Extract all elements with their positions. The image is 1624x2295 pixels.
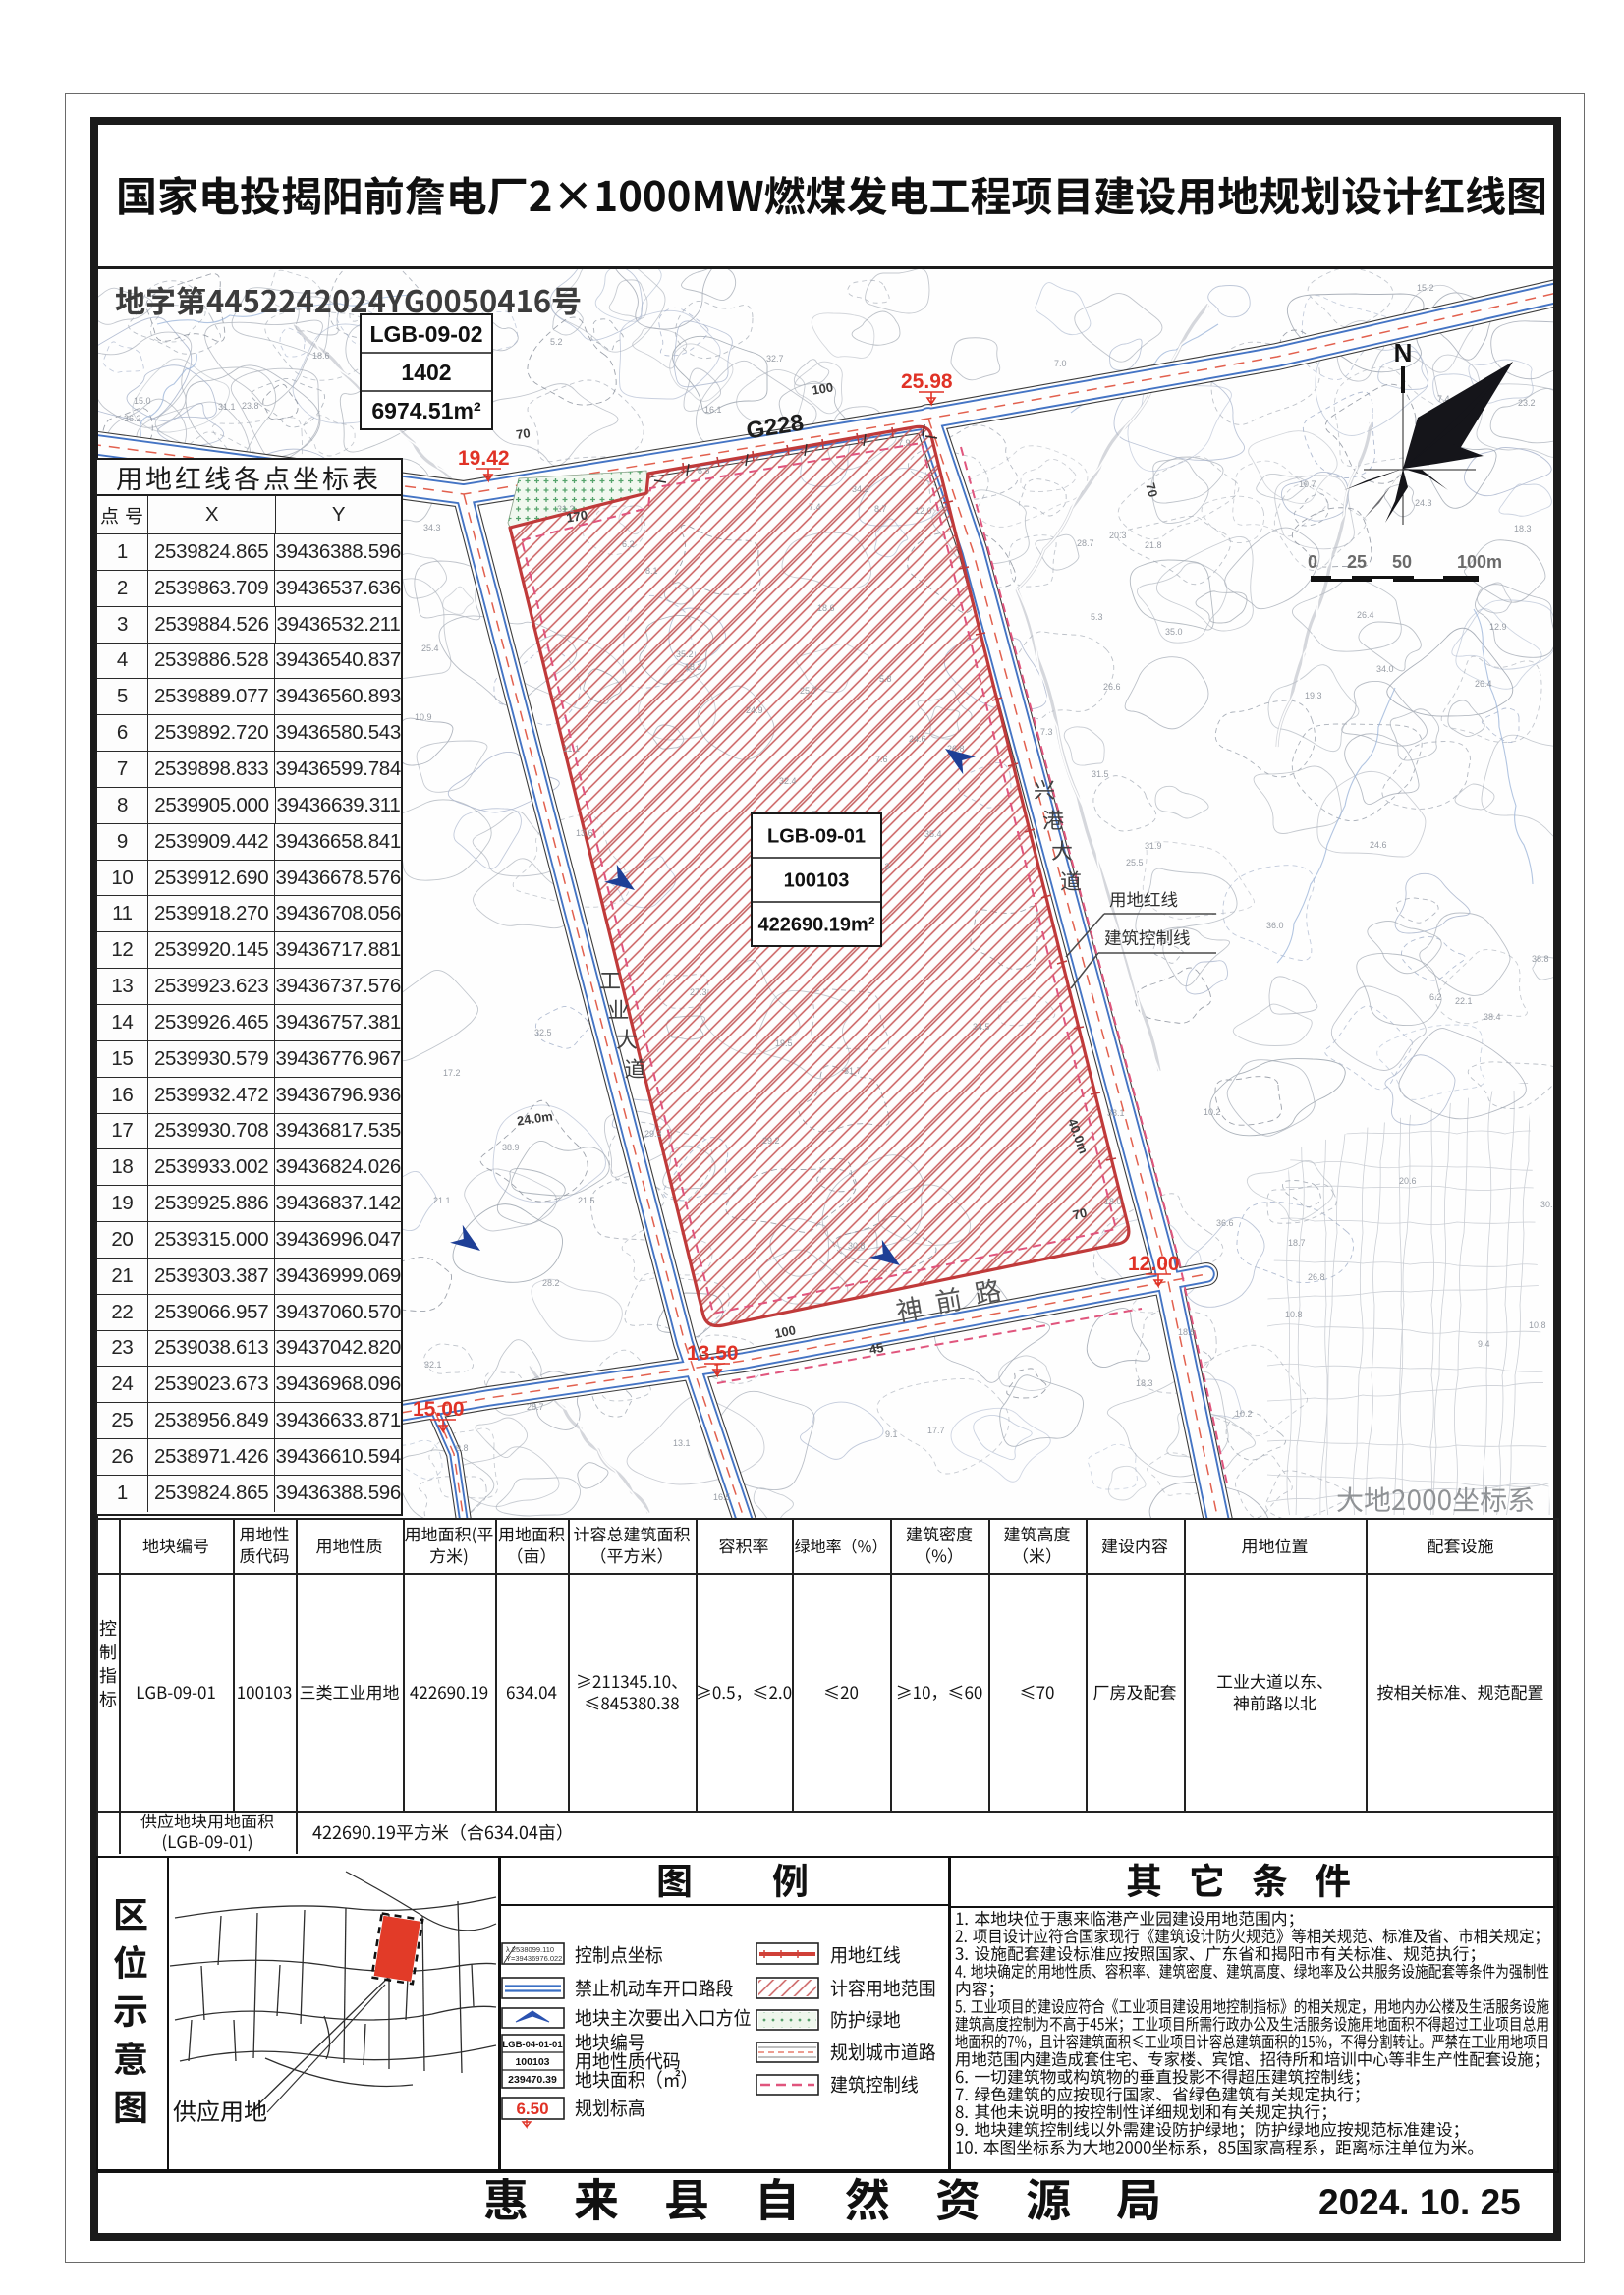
svg-text:34.0: 34.0 [1376, 664, 1394, 674]
svg-text:100103: 100103 [784, 870, 850, 892]
svg-text:31.7: 31.7 [844, 1066, 862, 1076]
svg-text:7.4: 7.4 [809, 502, 821, 512]
svg-text:11.1: 11.1 [563, 744, 580, 754]
svg-text:6974.51m²: 6974.51m² [371, 398, 481, 423]
svg-text:23.8: 23.8 [242, 401, 259, 411]
svg-text:26.8: 26.8 [1308, 1272, 1325, 1282]
svg-text:10.9: 10.9 [415, 712, 432, 722]
svg-text:LGB-09-01: LGB-09-01 [767, 826, 866, 848]
svg-text:31.9: 31.9 [1145, 841, 1162, 851]
svg-text:25: 25 [1347, 552, 1367, 572]
svg-text:34.5: 34.5 [973, 1022, 990, 1032]
svg-text:18.6: 18.6 [817, 603, 835, 613]
svg-text:19.5: 19.5 [775, 1038, 793, 1048]
svg-text:8.1: 8.1 [645, 566, 658, 576]
svg-text:19.42: 19.42 [458, 447, 510, 470]
svg-text:38.8: 38.8 [1532, 954, 1549, 964]
svg-text:36.6: 36.6 [1216, 1218, 1234, 1228]
svg-text:32.5: 32.5 [534, 1028, 552, 1037]
svg-text:N: N [1394, 338, 1413, 367]
svg-text:29.2: 29.2 [762, 1136, 780, 1146]
svg-text:15.2: 15.2 [1417, 283, 1434, 293]
svg-text:10.2: 10.2 [1204, 1107, 1221, 1117]
svg-text:9.8: 9.8 [456, 1443, 469, 1453]
svg-text:17.7: 17.7 [927, 1426, 945, 1435]
svg-text:6.2: 6.2 [1429, 992, 1442, 1002]
svg-text:30.2: 30.2 [1540, 1200, 1558, 1209]
svg-text:38.4: 38.4 [1484, 1012, 1501, 1022]
svg-text:29.3: 29.3 [644, 1129, 662, 1139]
svg-text:26.4: 26.4 [1357, 610, 1374, 620]
svg-text:13.50: 13.50 [687, 1342, 739, 1365]
svg-text:18.3: 18.3 [1136, 1378, 1153, 1388]
svg-text:25.4: 25.4 [421, 644, 439, 653]
svg-text:20.6: 20.6 [1399, 1176, 1417, 1186]
svg-text:24.6: 24.6 [1370, 840, 1387, 850]
svg-text:10.7: 10.7 [1299, 479, 1316, 489]
svg-text:26.4: 26.4 [1475, 679, 1492, 689]
svg-text:45: 45 [868, 1340, 885, 1357]
svg-text:9.1: 9.1 [885, 1429, 898, 1439]
svg-text:18.3: 18.3 [1514, 524, 1532, 533]
svg-text:13.1: 13.1 [673, 1438, 691, 1448]
svg-text:7.9: 7.9 [898, 438, 911, 448]
svg-text:8.8: 8.8 [698, 466, 710, 476]
svg-text:70: 70 [515, 425, 531, 442]
svg-text:31.5: 31.5 [1092, 769, 1109, 779]
svg-text:7.6: 7.6 [875, 755, 888, 764]
svg-text:34.3: 34.3 [423, 523, 441, 532]
svg-text:1402: 1402 [401, 360, 451, 385]
svg-text:19.3: 19.3 [1305, 691, 1322, 700]
svg-text:18.2: 18.2 [685, 662, 702, 672]
svg-text:24.3: 24.3 [1415, 498, 1432, 508]
svg-text:34.2: 34.2 [852, 484, 869, 494]
svg-text:21.1: 21.1 [433, 1196, 451, 1205]
svg-text:7.0: 7.0 [1054, 359, 1067, 368]
svg-text:35.4: 35.4 [924, 829, 942, 839]
svg-text:422690.19m²: 422690.19m² [758, 915, 875, 936]
svg-text:24.9: 24.9 [746, 705, 763, 715]
svg-text:30.8: 30.8 [848, 1241, 866, 1251]
svg-text:15.0: 15.0 [134, 396, 151, 406]
svg-text:18.5: 18.5 [1178, 1327, 1196, 1337]
svg-text:35.2: 35.2 [676, 649, 694, 659]
svg-text:12.0: 12.0 [915, 506, 932, 516]
svg-text:26.6: 26.6 [1103, 682, 1121, 692]
svg-text:0: 0 [1308, 552, 1317, 572]
svg-text:16.1: 16.1 [704, 405, 722, 415]
svg-text:21.8: 21.8 [1145, 540, 1162, 550]
svg-text:27.3: 27.3 [690, 987, 707, 997]
svg-text:15.00: 15.00 [413, 1398, 465, 1421]
svg-text:24.6: 24.6 [909, 734, 926, 744]
svg-text:50: 50 [1392, 552, 1412, 572]
svg-text:21.5: 21.5 [578, 1196, 595, 1205]
svg-text:28.7: 28.7 [527, 1402, 544, 1412]
svg-text:18.6: 18.6 [312, 351, 330, 361]
svg-text:23.2: 23.2 [1518, 398, 1536, 408]
svg-text:38.1: 38.1 [1107, 1108, 1125, 1118]
svg-text:38.9: 38.9 [502, 1143, 520, 1152]
svg-text:7.3: 7.3 [1040, 727, 1053, 737]
svg-text:20.3: 20.3 [1109, 531, 1127, 540]
svg-text:5.3: 5.3 [1091, 612, 1103, 622]
svg-text:13.6: 13.6 [576, 828, 593, 838]
svg-text:36.2: 36.2 [124, 414, 141, 423]
svg-text:12.9: 12.9 [1489, 622, 1507, 632]
svg-text:32.1: 32.1 [424, 1360, 442, 1370]
svg-text:5.2: 5.2 [550, 337, 563, 347]
svg-text:10.8: 10.8 [1285, 1310, 1303, 1319]
svg-text:17.2: 17.2 [443, 1068, 461, 1078]
svg-text:16.5: 16.5 [713, 1492, 731, 1502]
svg-text:22.1: 22.1 [1455, 996, 1473, 1006]
svg-text:28.7: 28.7 [1077, 538, 1094, 548]
svg-text:6.2: 6.2 [622, 539, 635, 549]
svg-text:18.0: 18.0 [1104, 1197, 1122, 1206]
svg-text:25.98: 25.98 [901, 370, 953, 393]
svg-text:25.7: 25.7 [800, 686, 817, 696]
svg-text:36.0: 36.0 [1266, 921, 1284, 930]
svg-text:32.7: 32.7 [766, 354, 784, 364]
svg-text:LGB-09-02: LGB-09-02 [369, 321, 482, 347]
svg-text:8.7: 8.7 [874, 504, 887, 514]
svg-text:35.0: 35.0 [1165, 627, 1183, 637]
svg-text:28.2: 28.2 [542, 1278, 560, 1288]
svg-text:5.8: 5.8 [879, 674, 892, 684]
svg-text:100m: 100m [1457, 552, 1502, 572]
svg-text:9.4: 9.4 [1478, 1339, 1490, 1349]
svg-text:32.4: 32.4 [779, 776, 797, 786]
svg-text:12.00: 12.00 [1128, 1253, 1180, 1275]
svg-text:18.7: 18.7 [1288, 1238, 1306, 1248]
svg-text:31.1: 31.1 [218, 402, 236, 412]
svg-text:25.5: 25.5 [1126, 858, 1144, 868]
svg-text:10.2: 10.2 [1235, 1409, 1253, 1419]
svg-text:10.8: 10.8 [1529, 1320, 1546, 1330]
